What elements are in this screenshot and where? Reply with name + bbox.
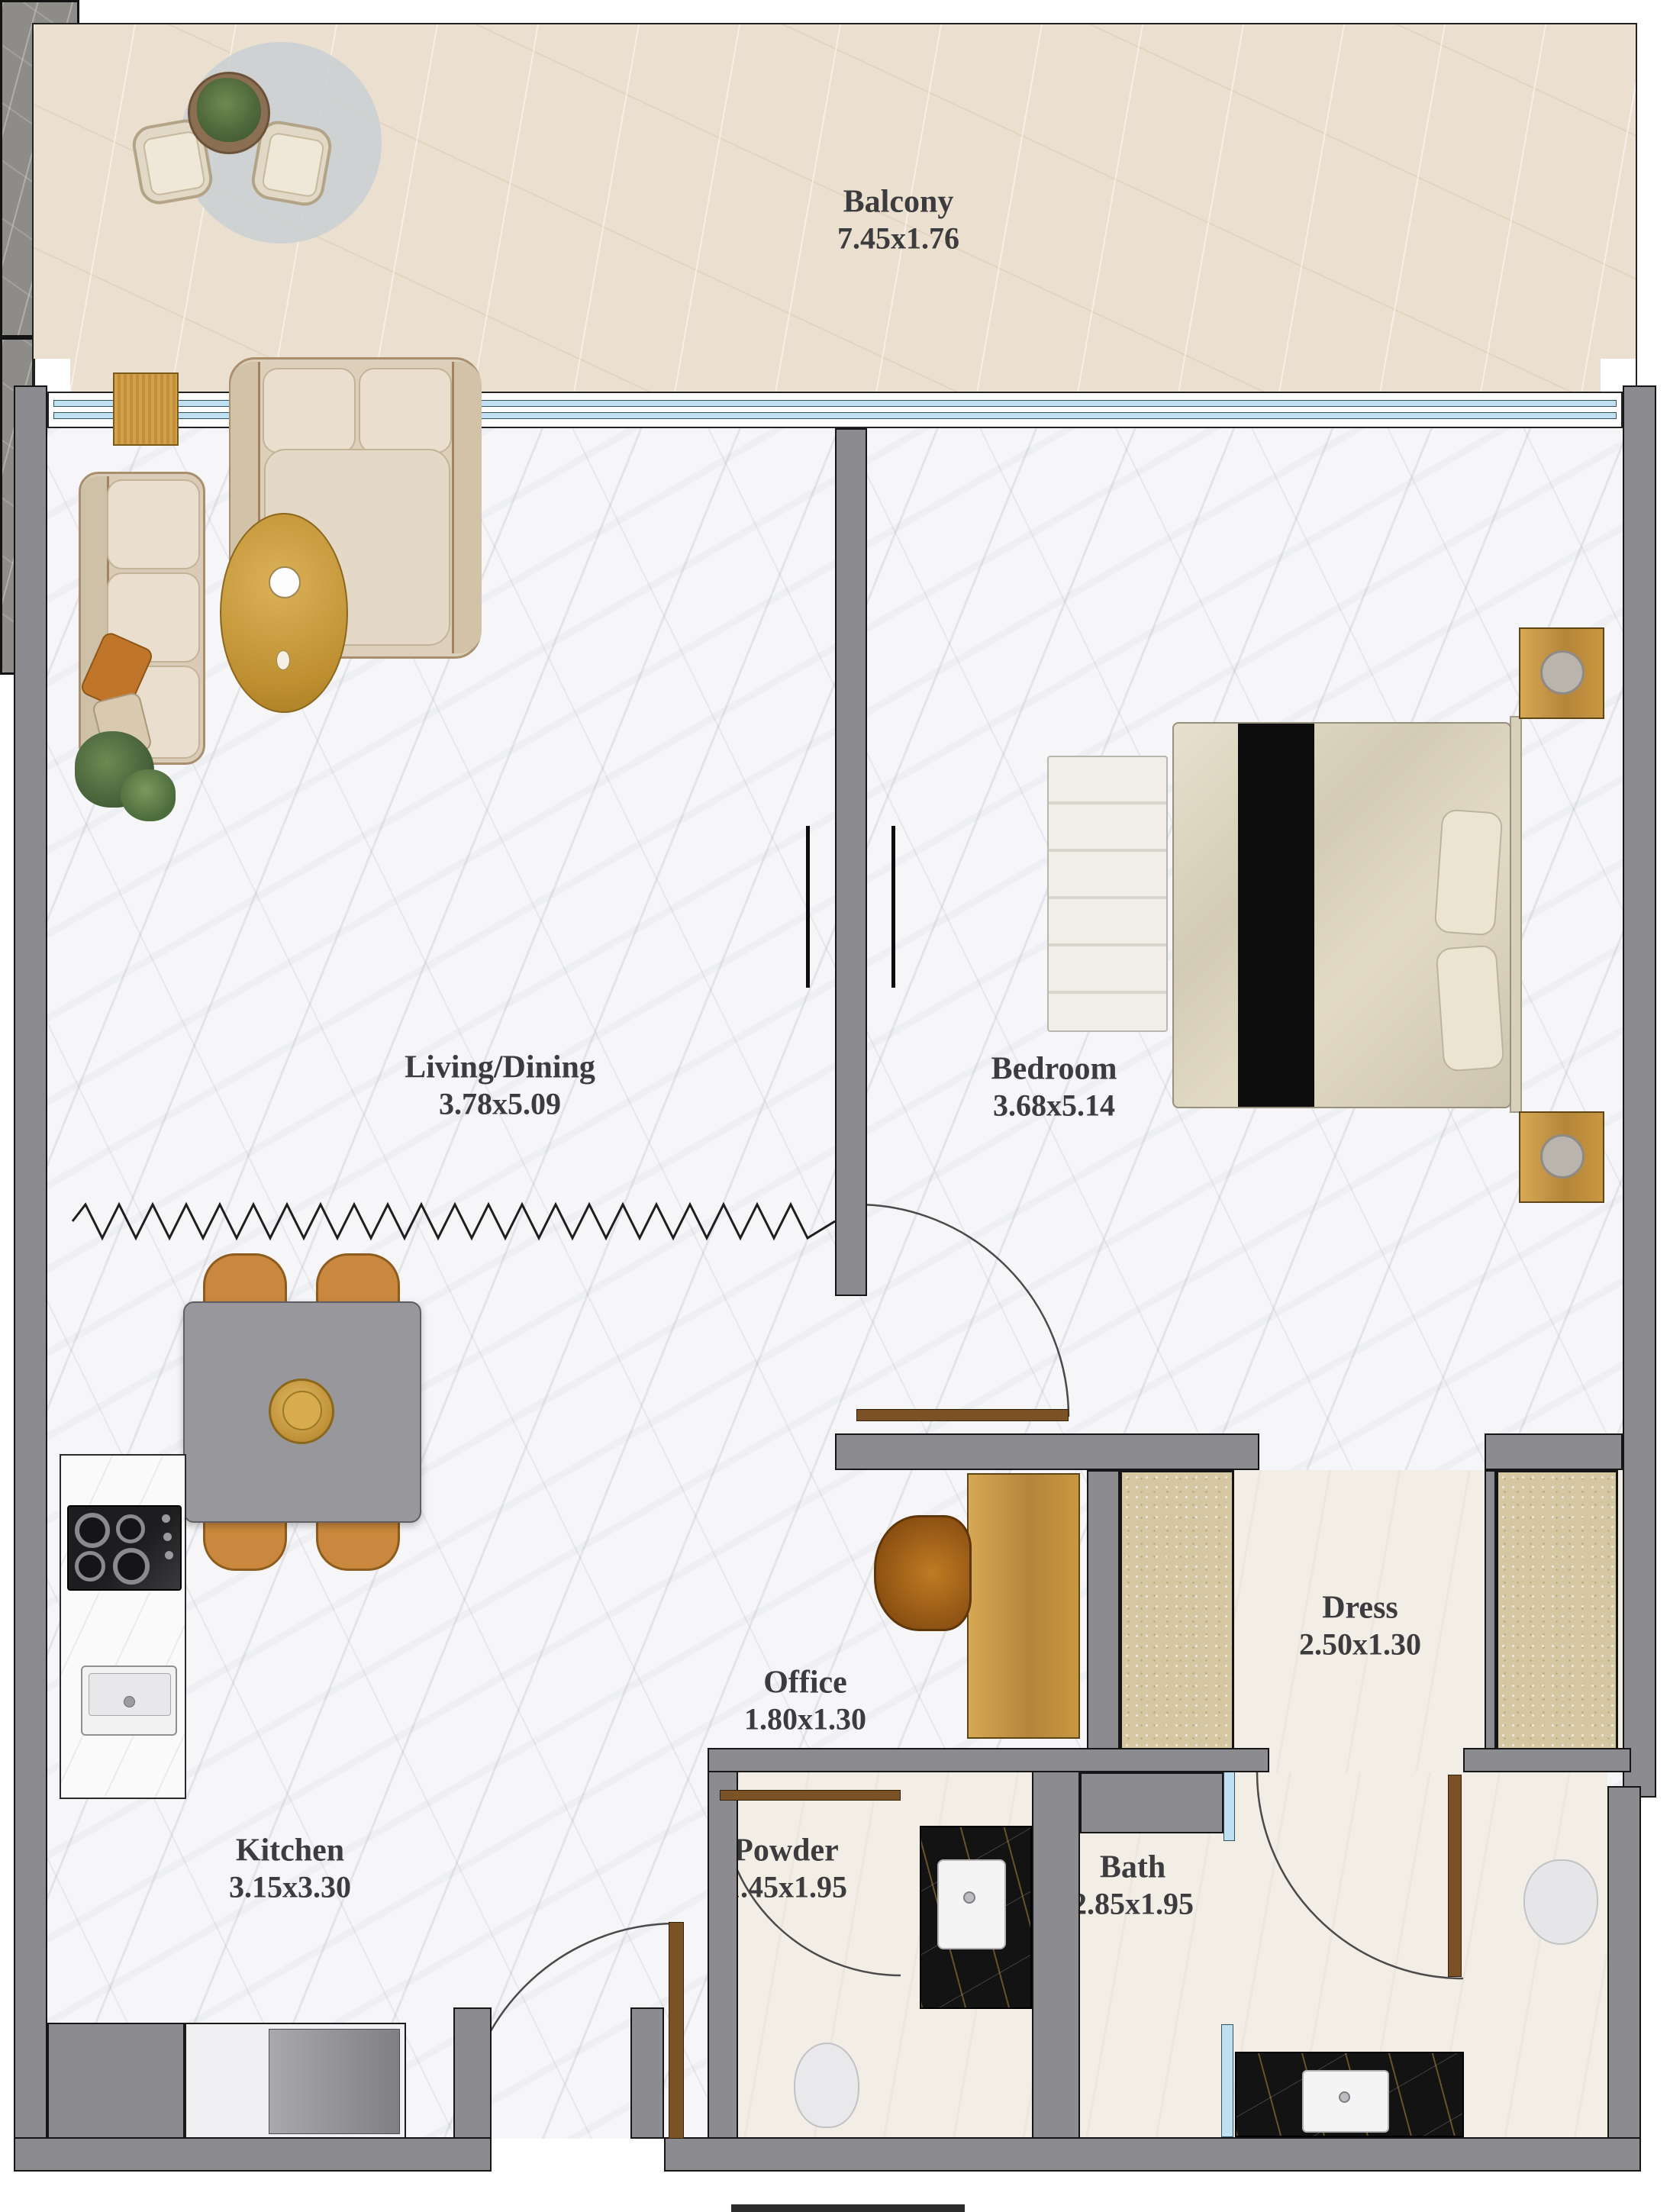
bath-door-leaf bbox=[1448, 1775, 1462, 1977]
bedroom-door-arc bbox=[856, 1204, 1069, 1417]
wall-backrooms-top-right bbox=[1463, 1748, 1631, 1772]
wall-backrooms-top-left bbox=[708, 1748, 1269, 1772]
wall-powder-bath bbox=[1032, 1748, 1080, 2139]
wall-dress-top-right bbox=[1485, 1433, 1623, 1470]
floor-plan: Balcony 7.45x1.76 Living/Dining bbox=[0, 0, 1670, 2212]
wall-bottom-left bbox=[14, 2137, 492, 2172]
wall-left bbox=[14, 385, 47, 2172]
bath-niche-block bbox=[1080, 1772, 1223, 1833]
powder-door-arc bbox=[721, 1796, 901, 1975]
wall-right-upper bbox=[1623, 385, 1656, 1798]
wall-break-zigzag bbox=[73, 1204, 835, 1238]
page-edge-mark bbox=[731, 2204, 965, 2212]
wall-dress-mid bbox=[1485, 1470, 1496, 1772]
entry-stub-right bbox=[630, 2007, 664, 2139]
bath-door-arc bbox=[1257, 1772, 1463, 1978]
powder-door-leaf bbox=[720, 1790, 901, 1801]
wall-divider-living-bedroom bbox=[835, 428, 867, 1296]
wall-right-lower bbox=[1607, 1786, 1641, 2172]
entry-stub-left bbox=[453, 2007, 492, 2139]
wall-bottom-right bbox=[664, 2137, 1641, 2172]
bedroom-door-leaf bbox=[856, 1409, 1069, 1421]
entry-door-leaf bbox=[669, 1922, 684, 2139]
wall-powder-left bbox=[708, 1748, 738, 2139]
wall-office-dress bbox=[1087, 1470, 1120, 1775]
wall-hall-top bbox=[835, 1433, 1259, 1470]
